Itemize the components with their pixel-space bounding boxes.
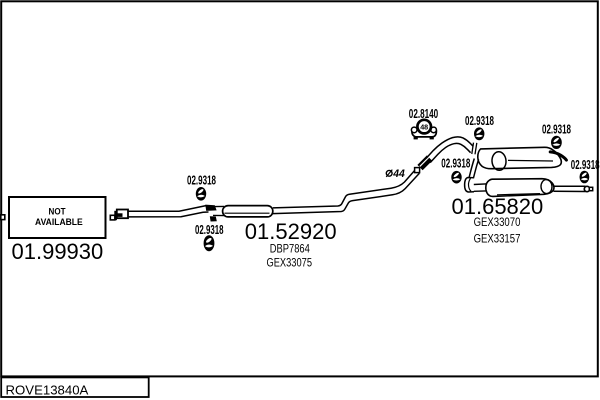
svg-text:GEX33157: GEX33157 [474,231,521,245]
svg-text:GEX33075: GEX33075 [267,257,313,269]
svg-text:02.9318: 02.9318 [195,222,224,237]
svg-text:ROVE13840A: ROVE13840A [6,382,89,397]
svg-text:02.9318: 02.9318 [571,157,600,172]
svg-text:02.9318: 02.9318 [465,113,494,128]
svg-text:02.9318: 02.9318 [542,122,571,137]
svg-text:NOT: NOT [49,206,66,216]
svg-text:02.9318: 02.9318 [441,155,470,170]
svg-text:02.9318: 02.9318 [187,173,216,188]
svg-text:AVAILABLE: AVAILABLE [35,217,83,227]
svg-text:GEX33070: GEX33070 [474,215,521,229]
svg-text:DBP7864: DBP7864 [270,244,310,256]
svg-text:01.99930: 01.99930 [12,239,104,264]
svg-text:01.52920: 01.52920 [245,219,337,244]
svg-text:48: 48 [420,122,428,131]
svg-text:44: 44 [392,168,405,180]
